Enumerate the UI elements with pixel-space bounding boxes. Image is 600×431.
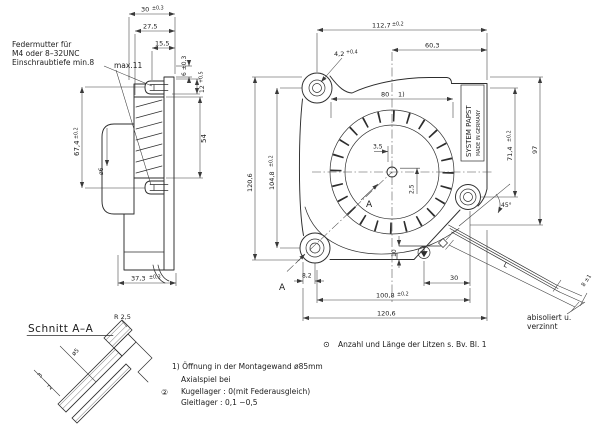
hole-bottom-left-outer <box>306 239 324 257</box>
section-dia5-label: ø5 <box>70 347 80 357</box>
dim-4-2-label: 4,2 <box>334 50 344 58</box>
footnote-axial-symbol: ② <box>161 388 168 397</box>
engineering-drawing-page: 30 ±0,3 27,5 15,5 6 ±0,3 12 +0,5 <box>0 0 600 431</box>
dim-30-label: 30 <box>141 6 149 14</box>
litzen-note-symbol: ⊙ <box>323 340 330 349</box>
footnote-axial-line1: Kugellager : 0(mit Federausgleich) <box>181 387 310 396</box>
dim-12-tol: +0,5 <box>199 71 205 83</box>
side-boss-top-thread <box>150 85 168 91</box>
footnotes: 1) Öffnung in der Montagewand ø85mm Axia… <box>161 362 323 407</box>
section-letter-outer: A <box>279 283 286 293</box>
hole-bottom-right <box>464 193 473 202</box>
boss-top-left <box>302 73 332 103</box>
litzen-note: ⊙ Anzahl und Länge der Litzen s. Bv. Bl.… <box>323 340 487 349</box>
dim-120-6-left: 120,6 <box>246 77 302 260</box>
hole-top-left <box>313 84 322 93</box>
section-dim3-label: 3 <box>36 372 44 380</box>
dim-100-8-label: 100,8 <box>376 292 395 300</box>
side-boss-bottom-thread <box>150 185 168 191</box>
dim-dia6-label: ø6 <box>98 167 105 175</box>
airflow-direction-symbol <box>418 247 430 259</box>
lead-wires <box>449 225 588 306</box>
side-boss-bottom <box>145 181 164 194</box>
dim-8-2: 8,2 <box>294 262 324 284</box>
dim-100-8-tol: ±0,2 <box>397 292 409 298</box>
dim-10-label: 10 <box>391 249 398 257</box>
scroll-curve <box>305 207 459 254</box>
dim-12-label: 12 <box>199 85 206 93</box>
dim-wire-length: L <box>446 240 580 312</box>
dim-15-5-label: 15,5 <box>155 40 169 48</box>
section-extra-outline <box>136 342 152 382</box>
dim-37-3-tol: ±0,3 <box>149 275 161 281</box>
dim-67-4-tol: ±0,2 <box>74 127 80 139</box>
dim-37-3-label: 37,3 <box>131 275 145 283</box>
footnote-axial-line2: Gleitlager : 0,1 −0,5 <box>181 398 258 407</box>
dim-2-5-label: 2,5 <box>409 184 416 194</box>
dim-6-label: 6 ±0,3 <box>181 56 188 76</box>
dim-3-5: 3,5 <box>373 144 388 163</box>
dim-15-5: 15,5 <box>152 40 175 81</box>
dim-100-8: 100,8 ±0,2 <box>317 270 470 303</box>
side-mounting-plate <box>164 77 174 270</box>
side-blade-cage <box>134 97 164 178</box>
section-arrow-inner <box>361 184 378 200</box>
dim-104-8-label: 104,8 <box>268 171 276 190</box>
thread-note-max11: max.11 <box>114 61 142 70</box>
thread-note-line3: Einschraubtiefe min.8 <box>12 58 94 67</box>
dim-27-5-label: 27,5 <box>143 23 157 31</box>
side-lower-body <box>124 178 134 214</box>
section-view: Schnitt A–A R 2,5 ø5 3 2 <box>27 313 152 423</box>
dim-54-label: 54 <box>200 134 208 143</box>
thread-note-line1: Federmutter für <box>12 40 72 49</box>
dim-4-2: 4,2 +0,4 <box>321 50 358 83</box>
dim-104-8: 104,8 ±0,2 <box>268 88 302 248</box>
dim-4-2-tol: +0,4 <box>346 50 358 56</box>
brand-line2: MADE IN GERMANY <box>476 110 482 156</box>
fan-technical-drawing: 30 ±0,3 27,5 15,5 6 ±0,3 12 +0,5 <box>0 0 600 431</box>
dim-97-label: 97 <box>531 146 539 154</box>
litzen-note-text: Anzahl und Länge der Litzen s. Bv. Bl. 1 <box>338 340 487 349</box>
dim-112-7-tol: ±0,2 <box>392 22 404 28</box>
wire-tip-note-line2: verzinnt <box>527 322 558 331</box>
side-impeller-blades <box>136 100 162 173</box>
side-outlet-skirt <box>124 214 164 270</box>
dim-60-3-label: 60,3 <box>425 42 439 50</box>
dim-37-3: 37,3 ±0,3 <box>118 255 176 286</box>
front-view: A A SYSTEM PAPST MADE IN GERMANY 45° L 8… <box>246 22 593 350</box>
dim-80-label: 80 <box>381 91 389 99</box>
wire-tip-note: abisoliert u. verzinnt <box>527 302 585 331</box>
section-dim2-label: 2 <box>46 384 54 392</box>
dim-30-bottom-label: 30 <box>450 274 458 282</box>
hole-bottom-right-outer <box>460 189 476 205</box>
section-radius-label: R 2,5 <box>114 313 131 321</box>
outlet-lines <box>397 246 441 260</box>
side-view: 30 ±0,3 27,5 15,5 6 ±0,3 12 +0,5 <box>12 6 208 287</box>
dim-wire-tip-label: 8 ±1 <box>581 274 593 288</box>
dim-112-7-label: 112,7 <box>372 22 391 30</box>
wire-tip-note-line1: abisoliert u. <box>527 313 571 322</box>
dim-3-5-label: 3,5 <box>373 144 383 151</box>
front-housing-left-edge <box>299 99 303 236</box>
dim-54: 54 <box>166 97 208 178</box>
dim-71-4-tol: ±0,2 <box>507 130 513 142</box>
side-top-outline <box>134 84 145 97</box>
dim-60-3: 60,3 <box>392 42 487 51</box>
footnote-axial-title: Axialspiel bei <box>181 375 231 384</box>
dim-8-2-label: 8,2 <box>302 273 312 280</box>
dim-80-footref: 1) <box>398 91 405 99</box>
dim-30-tol: ±0,3 <box>152 6 164 12</box>
dim-104-8-tol: ±0,2 <box>269 155 275 167</box>
boss-bottom-right <box>456 185 481 210</box>
dim-67-4-label: 67,4 <box>73 140 81 156</box>
thread-note-line2: M4 oder 8–32UNC <box>12 49 79 58</box>
dim-120-6-left-label: 120,6 <box>246 173 254 192</box>
section-letter-inner: A <box>366 200 373 210</box>
dim-71-4-label: 71,4 <box>506 147 514 161</box>
footnote-1: 1) Öffnung in der Montagewand ø85mm <box>172 362 323 371</box>
dim-angle-label: 45° <box>501 202 512 209</box>
section-title: Schnitt A–A <box>28 323 94 335</box>
dim-wire-length-label: L <box>502 261 509 270</box>
dim-30-bottom: 30 <box>424 211 470 286</box>
hole-top-left-outer <box>309 80 325 96</box>
dim-120-6-bottom: 120,6 <box>303 230 487 321</box>
dim-120-6-bottom-label: 120,6 <box>377 310 396 318</box>
side-boss-top <box>145 81 164 94</box>
brand-line1: SYSTEM PAPST <box>465 105 473 157</box>
